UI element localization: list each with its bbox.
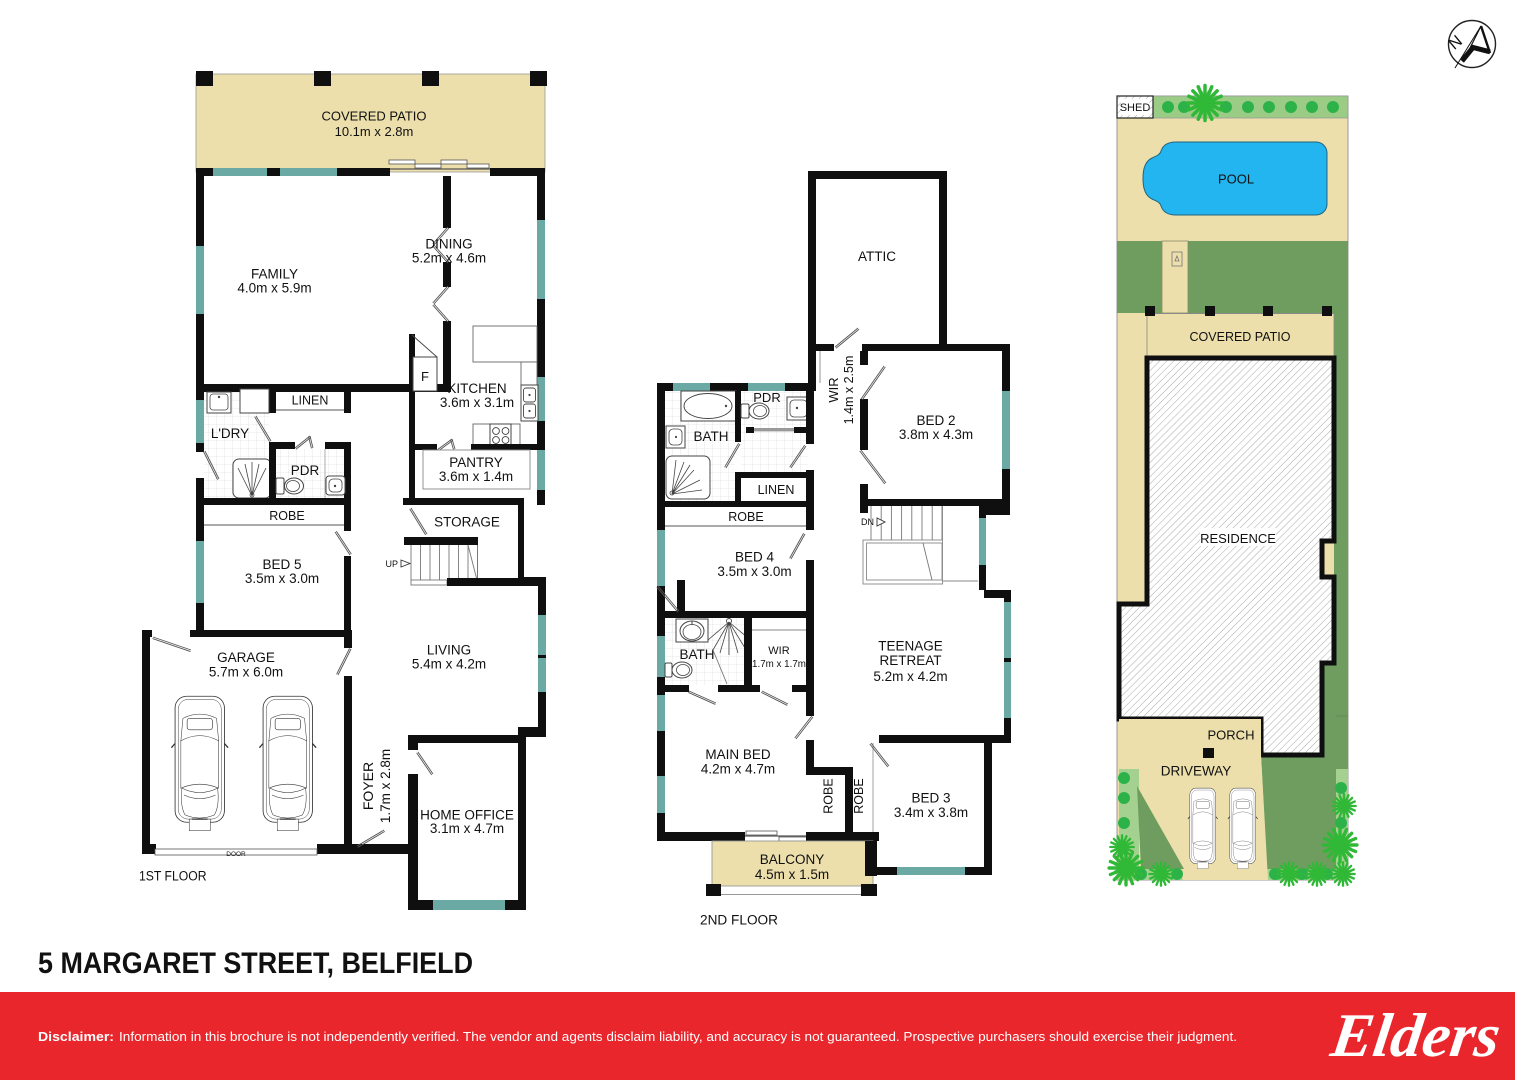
svg-text:FOYER: FOYER xyxy=(360,762,376,810)
svg-text:BED 4: BED 4 xyxy=(735,550,775,565)
svg-text:WIR: WIR xyxy=(768,645,789,657)
svg-text:DN: DN xyxy=(861,517,874,527)
svg-text:PORCH: PORCH xyxy=(1208,728,1255,743)
svg-text:MAIN BED: MAIN BED xyxy=(705,747,771,762)
svg-text:5.2m x 4.6m: 5.2m x 4.6m xyxy=(412,251,486,266)
svg-text:UP: UP xyxy=(385,559,398,569)
svg-text:BED 3: BED 3 xyxy=(911,791,950,806)
svg-text:F: F xyxy=(421,369,429,384)
svg-text:POOL: POOL xyxy=(1218,172,1254,187)
svg-text:RETREAT: RETREAT xyxy=(879,653,941,668)
svg-text:BALCONY: BALCONY xyxy=(760,852,825,867)
svg-text:DINING: DINING xyxy=(425,237,472,252)
svg-text:LINEN: LINEN xyxy=(292,394,329,408)
svg-text:LIVING: LIVING xyxy=(427,643,471,658)
svg-text:GARAGE: GARAGE xyxy=(217,650,275,665)
svg-text:4.5m x 1.5m: 4.5m x 1.5m xyxy=(755,867,829,882)
svg-text:3.8m x 4.3m: 3.8m x 4.3m xyxy=(899,427,973,442)
svg-text:1ST FLOOR: 1ST FLOOR xyxy=(139,869,207,884)
svg-text:STORAGE: STORAGE xyxy=(434,515,500,530)
svg-text:5.2m x 4.2m: 5.2m x 4.2m xyxy=(873,669,947,684)
svg-text:5.7m x 6.0m: 5.7m x 6.0m xyxy=(209,665,283,680)
svg-text:WIR: WIR xyxy=(826,377,841,402)
svg-text:DRIVEWAY: DRIVEWAY xyxy=(1161,764,1232,779)
svg-text:Disclaimer:: Disclaimer: xyxy=(38,1029,114,1044)
svg-text:ROBE: ROBE xyxy=(852,778,866,813)
svg-text:SHED: SHED xyxy=(1120,102,1151,114)
svg-text:Information in this brochure i: Information in this brochure is not inde… xyxy=(119,1029,1237,1044)
svg-text:PANTRY: PANTRY xyxy=(449,455,503,470)
svg-text:1.7m x 2.8m: 1.7m x 2.8m xyxy=(378,749,393,823)
svg-text:3.6m x 3.1m: 3.6m x 3.1m xyxy=(440,395,514,410)
svg-text:ROBE: ROBE xyxy=(269,509,304,523)
svg-text:4.0m x 5.9m: 4.0m x 5.9m xyxy=(237,281,311,296)
svg-text:Elders: Elders xyxy=(1326,1001,1505,1070)
svg-text:2ND FLOOR: 2ND FLOOR xyxy=(700,913,778,928)
svg-text:LINEN: LINEN xyxy=(758,483,795,497)
svg-text:3.4m x 3.8m: 3.4m x 3.8m xyxy=(894,805,968,820)
svg-text:ATTIC: ATTIC xyxy=(858,249,896,264)
svg-text:5.4m x 4.2m: 5.4m x 4.2m xyxy=(412,657,486,672)
svg-text:3.1m x 4.7m: 3.1m x 4.7m xyxy=(430,821,504,836)
svg-text:PDR: PDR xyxy=(291,463,320,478)
svg-text:ROBE: ROBE xyxy=(822,778,836,813)
svg-text:BED 2: BED 2 xyxy=(916,413,955,428)
svg-text:BED 5: BED 5 xyxy=(262,557,301,572)
svg-text:COVERED PATIO: COVERED PATIO xyxy=(322,109,427,124)
svg-text:5 MARGARET STREET, BELFIELD: 5 MARGARET STREET, BELFIELD xyxy=(38,947,473,980)
svg-text:DOOR: DOOR xyxy=(226,851,246,858)
svg-text:COVERED PATIO: COVERED PATIO xyxy=(1190,330,1291,344)
svg-text:L'DRY: L'DRY xyxy=(211,426,249,441)
svg-text:BATH: BATH xyxy=(693,429,728,444)
svg-text:FAMILY: FAMILY xyxy=(251,267,298,282)
svg-text:RESIDENCE: RESIDENCE xyxy=(1200,531,1276,546)
svg-text:1.7m x 1.7m: 1.7m x 1.7m xyxy=(752,659,806,670)
svg-text:ROBE: ROBE xyxy=(728,510,763,524)
svg-text:3.5m x 3.0m: 3.5m x 3.0m xyxy=(245,571,319,586)
svg-text:3.6m x 1.4m: 3.6m x 1.4m xyxy=(439,469,513,484)
svg-text:10.1m x 2.8m: 10.1m x 2.8m xyxy=(335,124,414,139)
svg-text:BATH: BATH xyxy=(679,647,714,662)
svg-text:4.2m x 4.7m: 4.2m x 4.7m xyxy=(701,762,775,777)
svg-text:1.4m x 2.5m: 1.4m x 2.5m xyxy=(842,356,856,425)
svg-text:3.5m x 3.0m: 3.5m x 3.0m xyxy=(717,564,791,579)
svg-text:TEENAGE: TEENAGE xyxy=(878,639,943,654)
svg-text:KITCHEN: KITCHEN xyxy=(447,381,506,396)
